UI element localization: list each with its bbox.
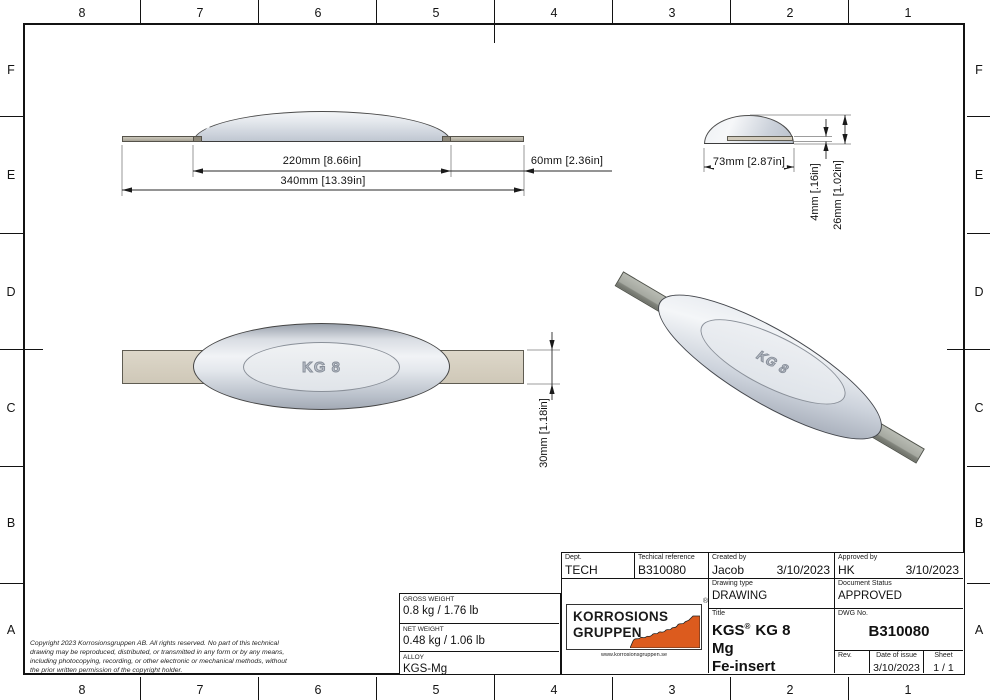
gross-weight-value: 0.8 kg / 1.76 lb — [400, 603, 559, 618]
side-view-strap-joint — [442, 136, 451, 142]
zone-tick — [0, 466, 23, 467]
drawing-title-line2: Mg — [709, 640, 834, 658]
grid-row-label: D — [969, 284, 989, 300]
rev-value — [835, 660, 869, 661]
grid-col-label: 5 — [426, 5, 446, 21]
dept-label: Dept. — [562, 553, 634, 562]
grid-row-label: C — [1, 400, 21, 416]
title-label: Title — [709, 609, 834, 618]
grid-col-label: 6 — [308, 5, 328, 21]
dim-body-height: 26mm [1.02in] — [832, 157, 844, 233]
zone-tick — [258, 0, 259, 23]
approved-by-label: Approved by — [835, 553, 963, 562]
grid-row-label: E — [1, 167, 21, 183]
grid-col-label: 3 — [662, 682, 682, 698]
title-block: Dept. TECH Techical reference B310080 Cr… — [561, 552, 965, 675]
weight-alloy-box: GROSS WEIGHT 0.8 kg / 1.76 lb NET WEIGHT… — [399, 593, 561, 675]
grid-row-label: F — [1, 62, 21, 78]
center-tick — [947, 349, 990, 350]
title-registered-mark: ® — [745, 622, 751, 631]
zone-tick — [0, 233, 23, 234]
copyright-line: including photocopying, recording, or ot… — [30, 657, 287, 666]
zone-tick — [376, 677, 377, 700]
logo-mountain-icon — [630, 615, 700, 648]
grid-row-label: A — [969, 622, 989, 638]
grid-row-label: D — [1, 284, 21, 300]
zone-tick — [612, 677, 613, 700]
alloy-label: ALLOY — [400, 652, 559, 661]
zone-tick — [0, 116, 23, 117]
grid-col-label: 3 — [662, 5, 682, 21]
company-url: www.korrosionsgruppen.se — [566, 652, 702, 658]
zone-tick — [376, 0, 377, 23]
grid-col-label: 6 — [308, 682, 328, 698]
zone-tick — [612, 0, 613, 23]
zone-tick — [848, 0, 849, 23]
center-tick — [0, 349, 43, 350]
grid-col-label: 8 — [72, 5, 92, 21]
plan-view-top-face: KG 8 — [243, 342, 400, 392]
drawing-type-value: DRAWING — [709, 588, 834, 603]
net-weight-label: NET WEIGHT — [400, 624, 559, 633]
grid-col-label: 2 — [780, 682, 800, 698]
grid-row-label: B — [1, 515, 21, 531]
grid-col-label: 8 — [72, 682, 92, 698]
dim-body-length: 220mm [8.66in] — [283, 155, 362, 167]
drawing-type-label: Drawing type — [709, 579, 834, 588]
dim-strap-width: 30mm [1.18in] — [538, 395, 550, 471]
drawing-sheet: 8 7 6 5 4 3 2 1 8 7 6 5 4 3 2 1 F E D C … — [0, 0, 990, 700]
net-weight-value: 0.48 kg / 1.06 lb — [400, 633, 559, 648]
dim-strap-extension: 60mm [2.36in] — [531, 155, 603, 167]
zone-tick — [258, 677, 259, 700]
dwg-no-label: DWG No. — [835, 609, 963, 618]
zone-tick — [967, 583, 990, 584]
zone-tick — [140, 0, 141, 23]
part-marking-text: KG 8 — [753, 348, 793, 376]
document-status-value: APPROVED — [835, 588, 963, 603]
techref-label: Techical reference — [635, 553, 708, 562]
registered-mark: ® — [703, 598, 708, 605]
drawing-title-line1: KGS®KG 8 — [709, 618, 834, 640]
drawing-title-line3: Fe-insert — [709, 658, 834, 676]
grid-row-label: E — [969, 167, 989, 183]
document-status-label: Document Status — [835, 579, 963, 588]
grid-col-label: 4 — [544, 5, 564, 21]
created-by-label: Created by — [709, 553, 834, 562]
grid-col-label: 4 — [544, 682, 564, 698]
zone-tick — [140, 677, 141, 700]
grid-col-label: 2 — [780, 5, 800, 21]
grid-col-label: 1 — [898, 5, 918, 21]
part-marking-text: KG 8 — [302, 359, 341, 376]
grid-row-label: A — [1, 622, 21, 638]
copyright-line: the prior written permission of the copy… — [30, 666, 287, 675]
grid-row-label: B — [969, 515, 989, 531]
side-view-strap-joint — [193, 136, 202, 142]
copyright-notice: Copyright 2023 Korrosionsgruppen AB. All… — [30, 639, 287, 675]
zone-tick — [848, 677, 849, 700]
approved-date: 3/10/2023 — [906, 563, 959, 577]
created-by-name: Jacob — [712, 563, 744, 577]
dim-overall-length: 340mm [13.39in] — [281, 175, 366, 187]
dim-body-width: 73mm [2.87in] — [711, 156, 787, 168]
grid-col-label: 7 — [190, 682, 210, 698]
grid-col-label: 7 — [190, 5, 210, 21]
alloy-value: KGS-Mg — [400, 661, 559, 676]
approved-by-name: HK — [838, 563, 855, 577]
zone-tick — [967, 466, 990, 467]
grid-col-label: 1 — [898, 682, 918, 698]
zone-tick — [967, 233, 990, 234]
techref-value: B310080 — [635, 562, 708, 577]
zone-tick — [967, 116, 990, 117]
zone-tick — [730, 677, 731, 700]
dept-value: TECH — [562, 562, 634, 577]
center-tick — [494, 0, 495, 43]
end-view-strap — [727, 136, 793, 141]
dim-strap-thickness: 4mm [.16in] — [809, 160, 821, 224]
date-of-issue-value: 3/10/2023 — [870, 660, 923, 675]
company-logo: KORROSIONS GRUPPEN ® — [566, 604, 702, 650]
copyright-line: drawing may be reproduced, distributed, … — [30, 648, 287, 657]
zone-tick — [730, 0, 731, 23]
sheet-label: Sheet — [924, 651, 963, 660]
rev-label: Rev. — [835, 651, 869, 660]
sheet-value: 1 / 1 — [924, 660, 963, 675]
grid-row-label: C — [969, 400, 989, 416]
gross-weight-label: GROSS WEIGHT — [400, 594, 559, 603]
zone-tick — [0, 583, 23, 584]
copyright-line: Copyright 2023 Korrosionsgruppen AB. All… — [30, 639, 287, 648]
grid-row-label: F — [969, 62, 989, 78]
created-date: 3/10/2023 — [777, 563, 830, 577]
dwg-no-value: B310080 — [835, 623, 963, 640]
grid-col-label: 5 — [426, 682, 446, 698]
date-of-issue-label: Date of issue — [870, 651, 923, 660]
